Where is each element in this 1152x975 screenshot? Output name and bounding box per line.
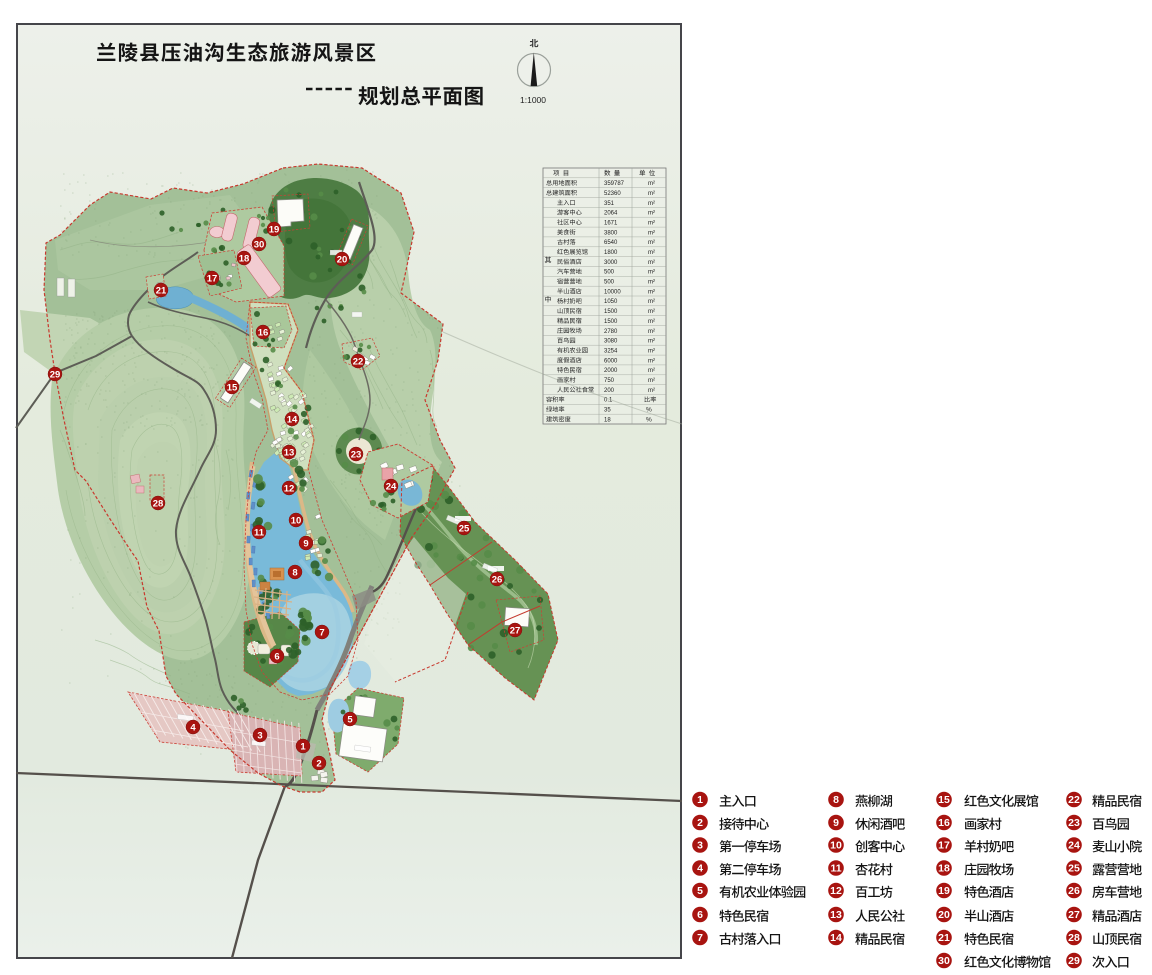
svg-text:27: 27 [510, 625, 521, 636]
svg-text:2000: 2000 [604, 368, 618, 374]
svg-text:m²: m² [648, 349, 655, 355]
svg-text:30: 30 [938, 955, 950, 967]
svg-text:10: 10 [830, 840, 842, 852]
svg-text:18: 18 [239, 253, 250, 264]
svg-text:18: 18 [604, 417, 611, 423]
svg-text:19: 19 [269, 224, 280, 235]
svg-text:m²: m² [648, 240, 655, 246]
svg-text:3254: 3254 [604, 349, 618, 355]
svg-text:1: 1 [300, 741, 306, 752]
svg-text:30: 30 [254, 239, 265, 250]
svg-text:23: 23 [351, 449, 362, 460]
svg-text:1500: 1500 [604, 309, 618, 315]
svg-text:19: 19 [938, 885, 950, 897]
svg-text:1: 1 [697, 794, 703, 806]
svg-text:3080: 3080 [604, 339, 618, 345]
svg-text:m²: m² [648, 181, 655, 187]
svg-text:25: 25 [459, 523, 470, 534]
svg-text:29: 29 [1068, 955, 1080, 967]
svg-text:27: 27 [1068, 909, 1080, 921]
svg-text:24: 24 [386, 481, 397, 492]
svg-text:m²: m² [648, 358, 655, 364]
svg-text:16: 16 [258, 327, 269, 338]
svg-text:20: 20 [938, 909, 950, 921]
svg-text:6: 6 [697, 909, 703, 921]
svg-text:1500: 1500 [604, 319, 618, 325]
svg-text:m²: m² [648, 280, 655, 286]
svg-text:24: 24 [1068, 840, 1080, 852]
svg-text:15: 15 [227, 382, 238, 393]
svg-text:13: 13 [284, 447, 295, 458]
svg-text:m²: m² [648, 388, 655, 394]
svg-text:17: 17 [207, 273, 218, 284]
svg-text:m²: m² [648, 329, 655, 335]
svg-text:m²: m² [648, 201, 655, 207]
svg-text:2: 2 [697, 817, 703, 829]
svg-text:23: 23 [1068, 817, 1080, 829]
svg-text:1050: 1050 [604, 299, 618, 305]
svg-text:4: 4 [190, 722, 196, 733]
svg-text:m²: m² [648, 319, 655, 325]
svg-text:7: 7 [319, 627, 324, 638]
svg-text:10: 10 [291, 515, 302, 526]
svg-text:3: 3 [697, 840, 703, 852]
svg-text:3800: 3800 [604, 230, 618, 236]
svg-text:18: 18 [938, 863, 950, 875]
svg-text:6000: 6000 [604, 358, 618, 364]
svg-text:28: 28 [153, 498, 164, 509]
svg-text:14: 14 [830, 932, 842, 944]
svg-text:35: 35 [604, 408, 611, 414]
svg-text:351: 351 [604, 201, 615, 207]
svg-text:359787: 359787 [604, 181, 625, 187]
svg-text:m²: m² [648, 339, 655, 345]
svg-text:16: 16 [938, 817, 950, 829]
svg-text:m²: m² [648, 211, 655, 217]
svg-text:4: 4 [697, 863, 703, 875]
svg-text:%: % [646, 416, 652, 423]
svg-text:8: 8 [292, 567, 297, 578]
svg-text:m²: m² [648, 230, 655, 236]
svg-text:8: 8 [833, 794, 839, 806]
svg-text:22: 22 [353, 356, 364, 367]
svg-text:2: 2 [316, 758, 321, 769]
svg-text:13: 13 [830, 909, 842, 921]
svg-text:26: 26 [1068, 885, 1080, 897]
svg-text:15: 15 [938, 794, 950, 806]
svg-text:9: 9 [833, 817, 839, 829]
svg-text:5: 5 [697, 885, 703, 897]
svg-text:6: 6 [274, 651, 279, 662]
svg-text:25: 25 [1068, 863, 1080, 875]
svg-text:200: 200 [604, 388, 615, 394]
svg-text:11: 11 [830, 863, 841, 875]
svg-text:m²: m² [648, 221, 655, 227]
svg-text:11: 11 [254, 527, 265, 538]
svg-text:750: 750 [604, 378, 615, 384]
svg-text:12: 12 [284, 483, 295, 494]
svg-text:m²: m² [648, 250, 655, 256]
svg-text:52360: 52360 [604, 191, 621, 197]
svg-text:12: 12 [830, 885, 842, 897]
svg-text:2064: 2064 [604, 211, 618, 217]
svg-text:500: 500 [604, 270, 615, 276]
svg-text:14: 14 [287, 414, 298, 425]
svg-text:2780: 2780 [604, 329, 618, 335]
svg-text:20: 20 [337, 254, 348, 265]
svg-text:1800: 1800 [604, 250, 618, 256]
svg-text:28: 28 [1068, 932, 1080, 944]
svg-text:10000: 10000 [604, 289, 621, 295]
svg-text:m²: m² [648, 378, 655, 384]
svg-text:3: 3 [257, 730, 262, 741]
svg-text:1671: 1671 [604, 221, 618, 227]
svg-text:7: 7 [697, 932, 703, 944]
svg-text:1:1000: 1:1000 [520, 95, 546, 105]
svg-text:21: 21 [938, 932, 950, 944]
svg-text:m²: m² [648, 260, 655, 266]
svg-text:m²: m² [648, 368, 655, 374]
svg-text:26: 26 [492, 574, 503, 585]
svg-text:17: 17 [938, 840, 950, 852]
svg-text:22: 22 [1068, 794, 1080, 806]
svg-text:m²: m² [648, 289, 655, 295]
svg-text:21: 21 [156, 285, 167, 296]
svg-text:5: 5 [347, 714, 353, 725]
svg-text:m²: m² [648, 270, 655, 276]
svg-text:3000: 3000 [604, 260, 618, 266]
svg-text:m²: m² [648, 191, 655, 197]
svg-text:6540: 6540 [604, 240, 618, 246]
svg-text:29: 29 [50, 369, 61, 380]
svg-text:500: 500 [604, 280, 615, 286]
svg-text:m²: m² [648, 309, 655, 315]
svg-text:9: 9 [303, 538, 308, 549]
svg-text:m²: m² [648, 299, 655, 305]
